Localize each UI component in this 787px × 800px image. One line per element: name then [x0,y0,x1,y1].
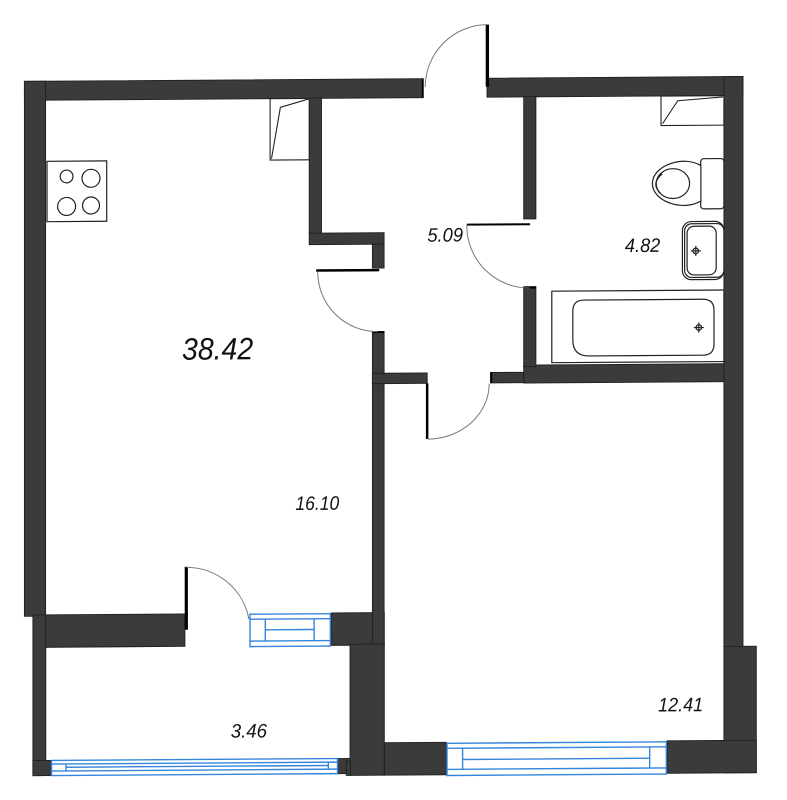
svg-text:38.42: 38.42 [182,331,253,366]
svg-text:5.09: 5.09 [427,224,463,246]
svg-text:4.82: 4.82 [625,235,661,257]
svg-text:3.46: 3.46 [231,720,267,742]
svg-text:16.10: 16.10 [295,493,339,515]
svg-text:12.41: 12.41 [658,694,703,716]
